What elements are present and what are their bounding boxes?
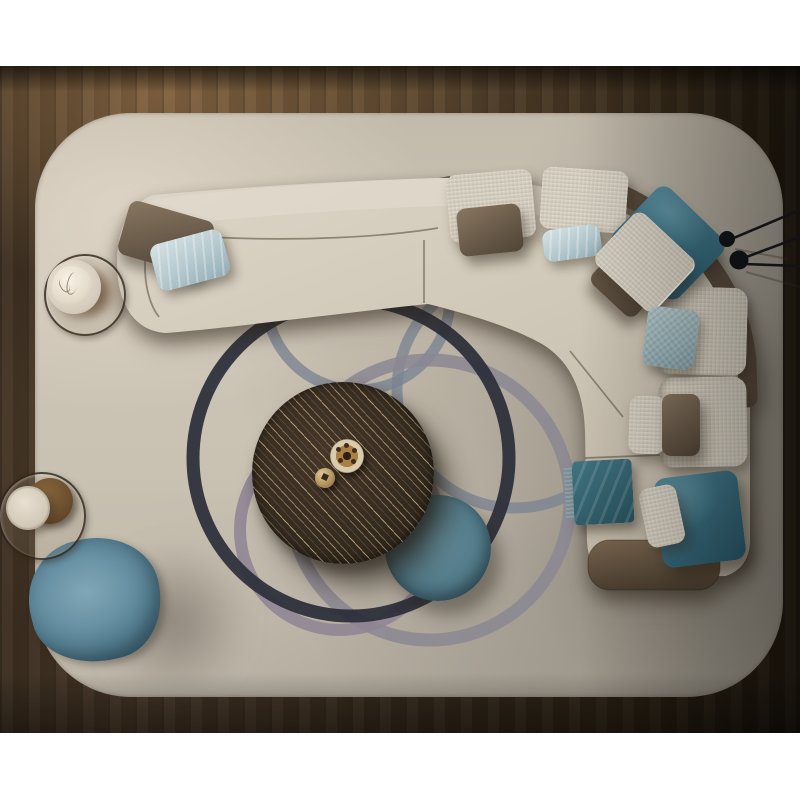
screenshot-stage	[0, 0, 800, 800]
white-margin-top	[0, 0, 800, 66]
room-photo	[0, 66, 800, 733]
floor-right-vignette	[580, 66, 800, 733]
white-margin-bottom	[0, 733, 800, 800]
